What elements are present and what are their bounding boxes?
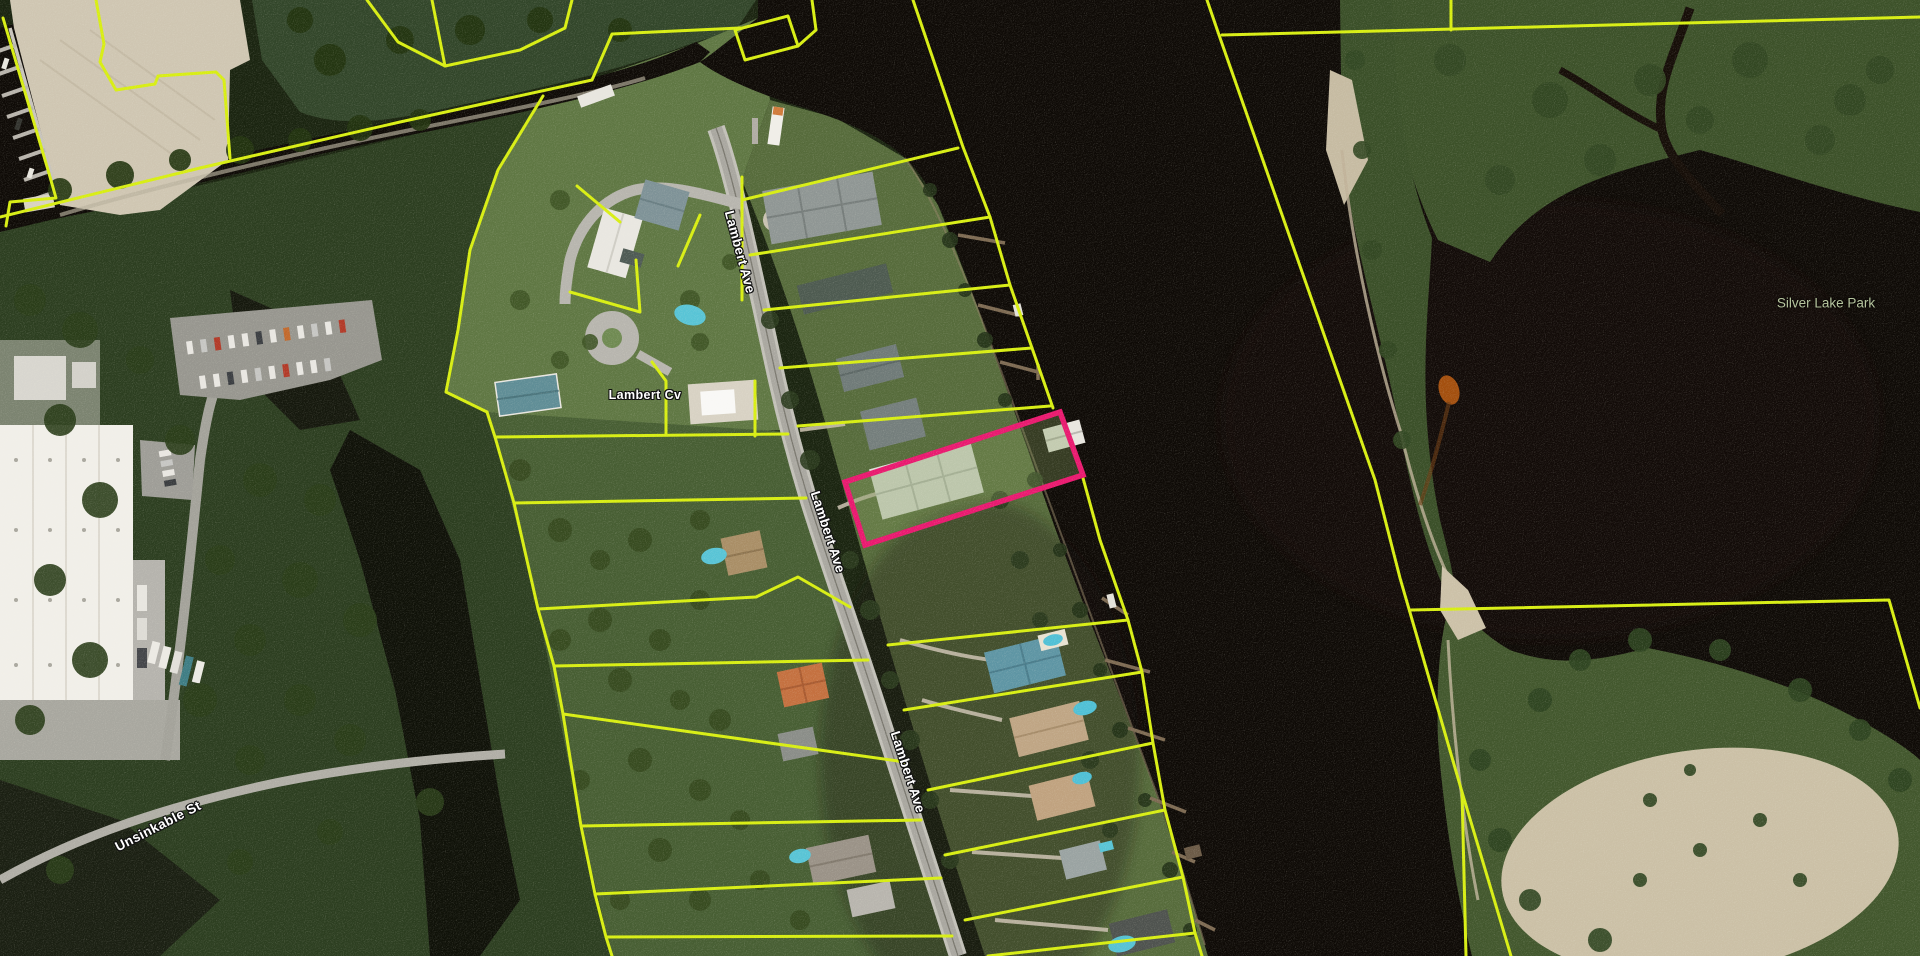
satellite-map: [0, 0, 1920, 956]
satellite-grain: [0, 0, 1920, 956]
map-viewport[interactable]: Lambert Ave Lambert Ave Lambert Ave Lamb…: [0, 0, 1920, 956]
